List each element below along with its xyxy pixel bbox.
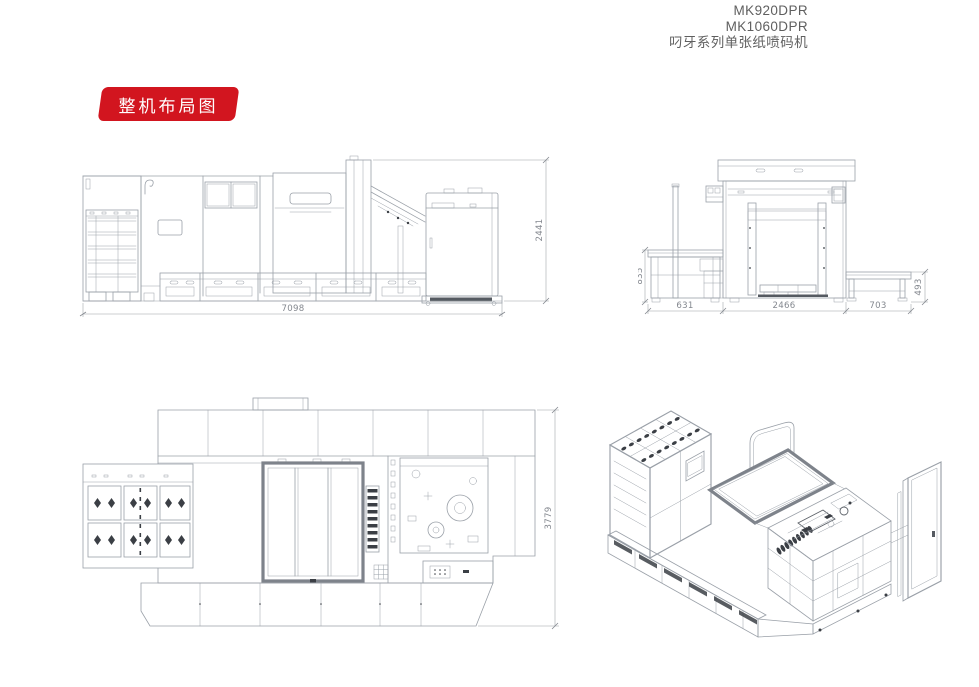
isometric-drawing <box>598 383 958 653</box>
dim-front-center-width-label: 2466 <box>772 301 795 311</box>
side-machine-outline <box>83 156 502 306</box>
section-badge: 整机布局图 <box>100 87 237 121</box>
plan-view-drawing: 3779 <box>78 396 578 646</box>
side-elevation-drawing: 7098 2441 <box>78 146 568 326</box>
front-elevation-drawing: 835 493 631 2466 703 <box>638 153 938 323</box>
model-names: MK920DPR MK1060DPR 叼牙系列单张纸喷码机 <box>669 3 808 51</box>
page: MK920DPR MK1060DPR 叼牙系列单张纸喷码机 整机布局图 <box>0 0 979 687</box>
plan-dimensions: 3779 <box>478 407 559 629</box>
iso-feed-bed <box>710 450 845 528</box>
model-name-2: MK1060DPR <box>669 19 808 35</box>
front-elevation-view: 835 493 631 2466 703 <box>638 153 938 323</box>
isometric-view <box>598 383 958 653</box>
dim-front-left-width-label: 631 <box>676 301 693 311</box>
plan-ladder-strip <box>366 486 379 552</box>
section-badge-label: 整机布局图 <box>100 87 237 121</box>
iso-end-panel <box>891 462 941 601</box>
plan-mechanism <box>374 456 493 583</box>
dim-front-left-height-label: 835 <box>638 267 645 284</box>
plan-press-bed <box>263 459 363 583</box>
dim-side-height-label: 2441 <box>535 218 545 241</box>
dim-plan-depth-label: 3779 <box>544 506 554 529</box>
plan-bottom-apron <box>141 583 493 626</box>
plan-machine-outline <box>83 398 535 626</box>
model-name-1: MK920DPR <box>669 3 808 19</box>
front-machine-outline <box>648 160 911 302</box>
dim-front-right-height-label: 493 <box>914 278 924 295</box>
dim-front-right-width-label: 703 <box>869 301 886 311</box>
plan-view: 3779 <box>78 396 578 646</box>
dim-side-width-label: 7098 <box>281 304 304 314</box>
series-name: 叼牙系列单张纸喷码机 <box>669 35 808 51</box>
side-elevation-view: 7098 2441 <box>78 146 568 326</box>
